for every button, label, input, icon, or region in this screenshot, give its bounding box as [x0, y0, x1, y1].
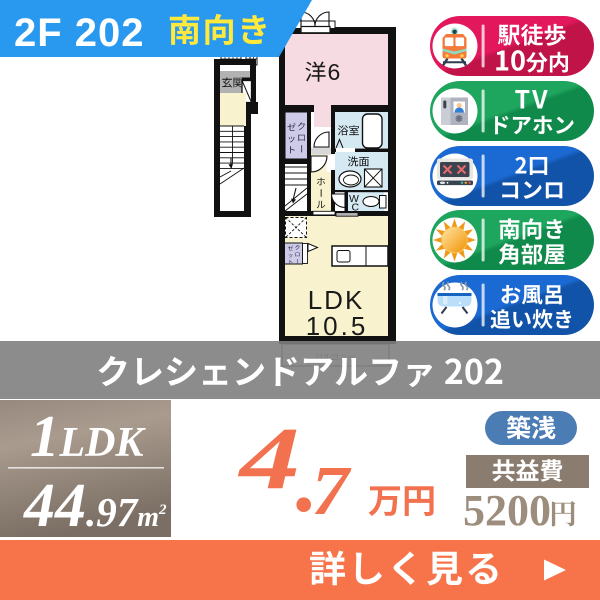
svg-text:2F 202: 2F 202	[14, 11, 145, 55]
svg-text:5200: 5200	[463, 486, 551, 535]
svg-text:6: 6	[328, 59, 341, 85]
